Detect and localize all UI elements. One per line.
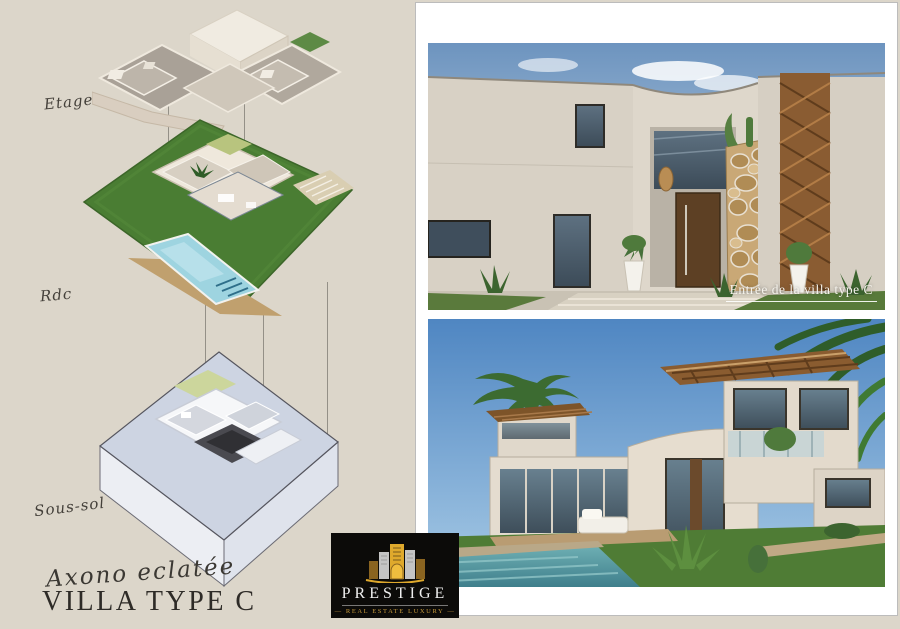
pendant-lamp xyxy=(659,167,673,191)
shrub xyxy=(824,523,860,539)
villa-pool-illustration xyxy=(428,319,885,587)
villa-entrance-illustration xyxy=(428,43,885,310)
photo-panel: Entrée de la villa type C xyxy=(415,2,898,616)
buildings-icon xyxy=(360,537,430,583)
upper-window xyxy=(576,105,604,147)
front-door xyxy=(676,193,720,287)
villa-pool-photo xyxy=(428,319,885,587)
left-balcony-glass xyxy=(502,423,570,439)
low-window xyxy=(428,221,490,257)
prestige-logo: PRESTIGE — REAL ESTATE LUXURY — xyxy=(331,533,459,618)
entrance-photo-caption: Entrée de la villa type C xyxy=(726,282,877,302)
upper-window-right xyxy=(800,389,848,429)
right-facade xyxy=(758,73,885,293)
page-title: VILLA TYPE C xyxy=(42,586,257,618)
villa-entrance-photo: Entrée de la villa type C xyxy=(428,43,885,310)
brochure-page: Etage Rdc Sous-sol xyxy=(0,0,900,629)
small-plant xyxy=(748,545,768,573)
right-window xyxy=(826,479,870,507)
entry-side-door xyxy=(554,215,590,287)
logo-tagline-text: — REAL ESTATE LUXURY — xyxy=(335,608,456,615)
upper-window-left xyxy=(734,389,786,429)
rdc-floorplan-illustration xyxy=(68,110,368,332)
left-facade xyxy=(428,77,633,299)
logo-brand-text: PRESTIGE xyxy=(342,585,449,606)
terrace-plant xyxy=(764,427,796,451)
